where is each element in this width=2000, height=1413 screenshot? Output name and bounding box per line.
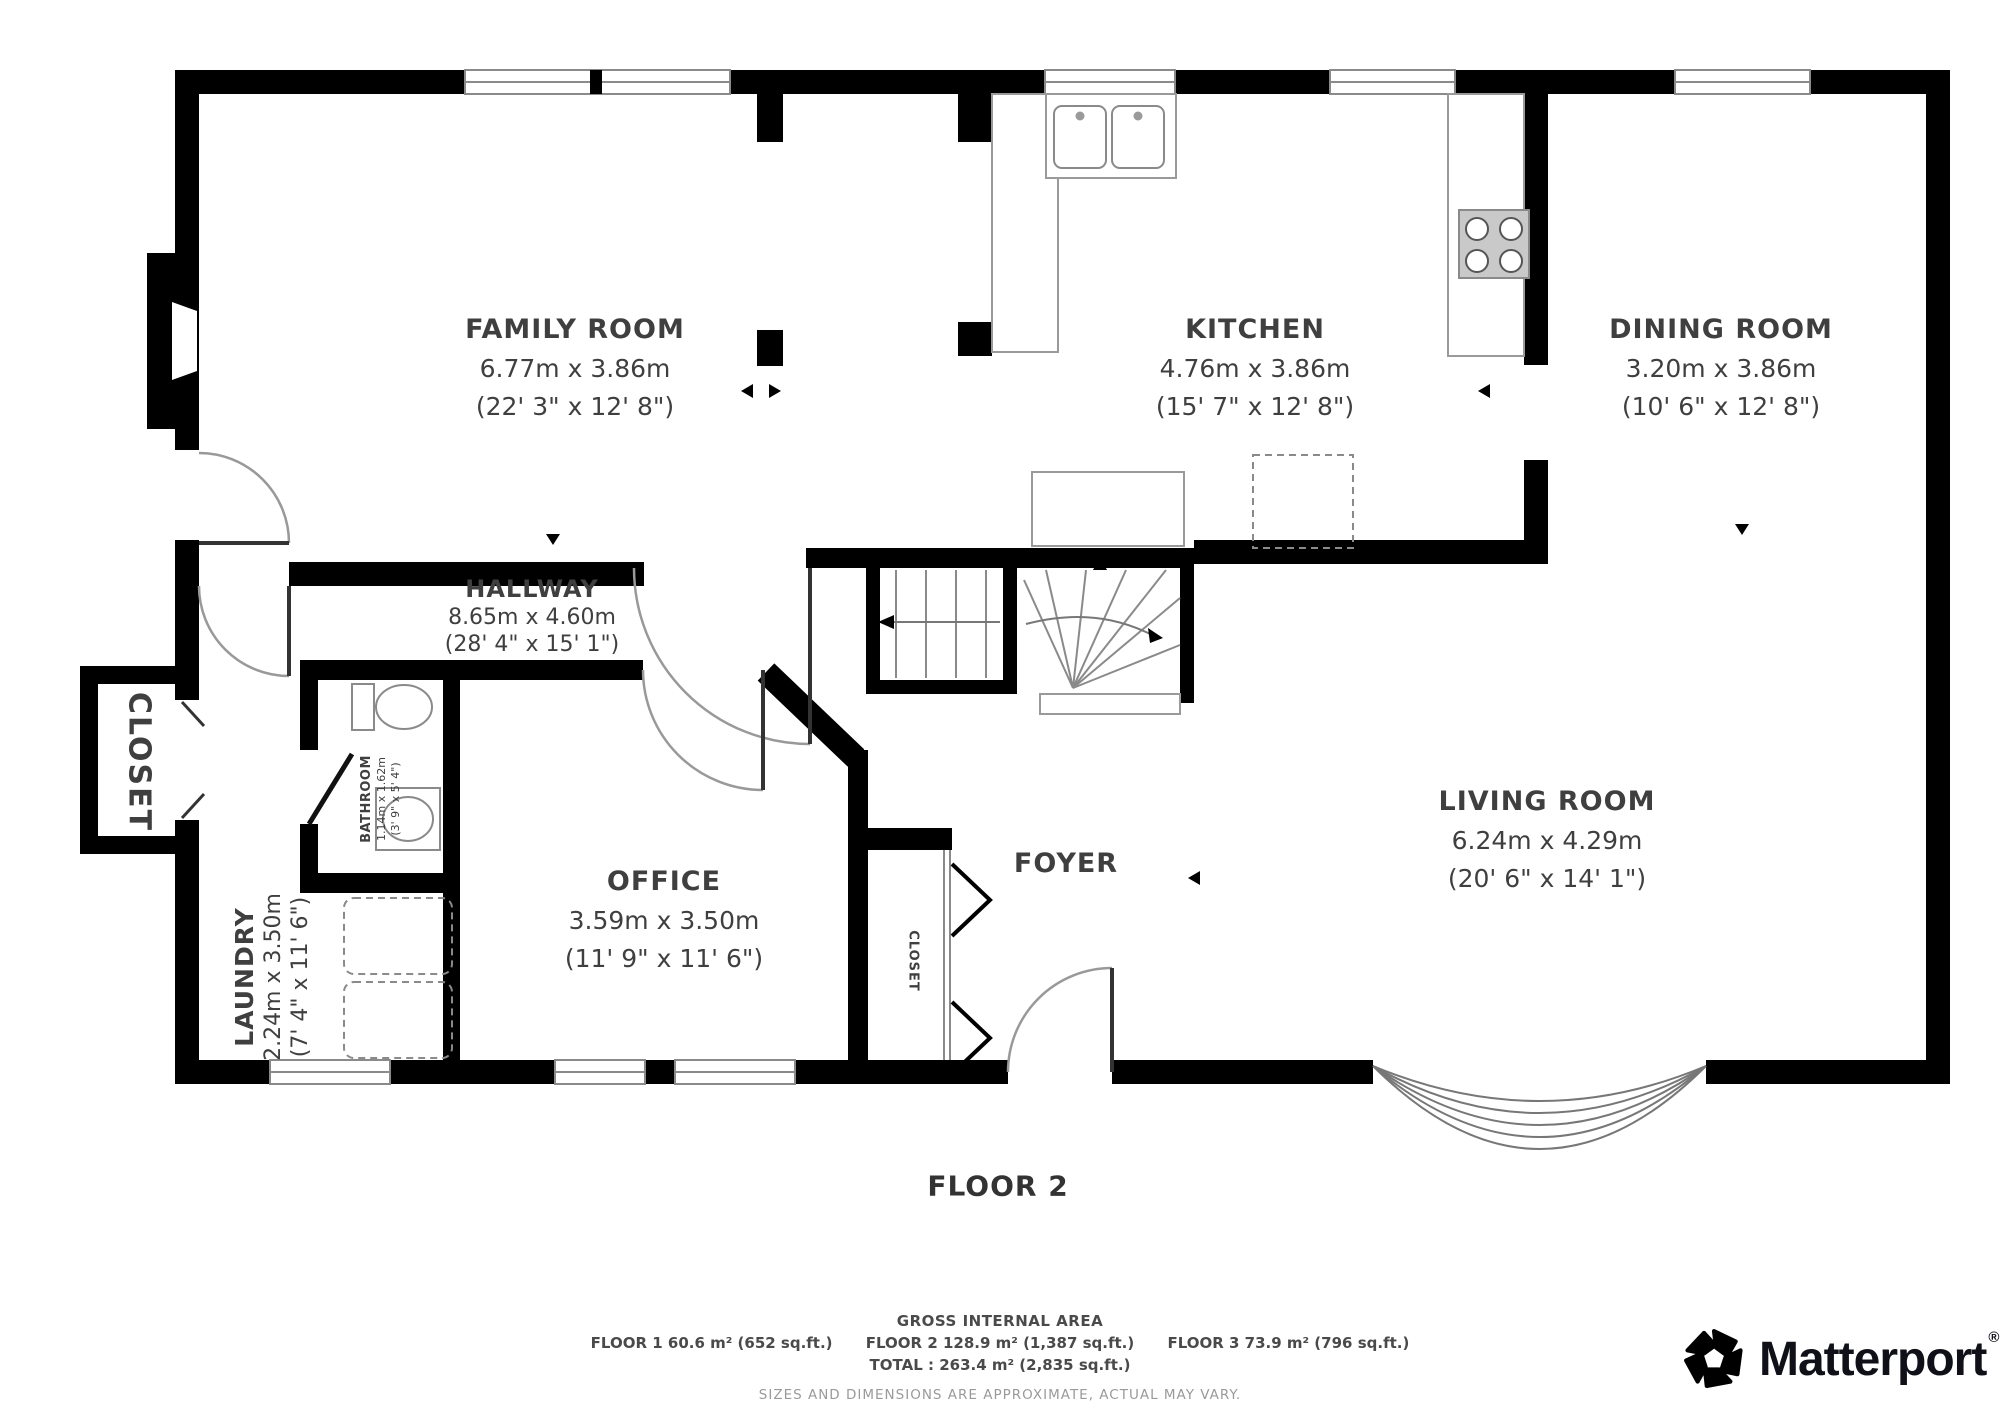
matterport-pinwheel-icon [1683,1326,1745,1392]
room-label-closet-hall: CLOSET [122,692,157,832]
kitchen-island-dashed [1253,455,1353,548]
stove-icon [1459,210,1529,278]
stairs [878,472,1184,714]
laundry-appliances [344,898,452,1058]
registered-mark: ® [1988,1329,1998,1346]
room-label-dining: DINING ROOM 3.20m x 3.86m (10' 6" x 12' … [1609,310,1833,426]
floorplan-page: FAMILY ROOM 6.77m x 3.86m (22' 3" x 12' … [0,0,2000,1413]
doors [199,453,1112,1072]
floor-title: FLOOR 2 [927,1170,1068,1203]
room-label-bathroom: BATHROOM 1.14m x 1.62m (3' 9" x 5' 4") [359,755,403,843]
matterport-wordmark: Matterport® [1759,1332,1996,1387]
room-label-living: LIVING ROOM 6.24m x 4.29m (20' 6" x 14' … [1439,782,1656,898]
toilet-icon [352,684,374,730]
matterport-logo: Matterport® [1683,1326,1996,1392]
floor3-area: FLOOR 3 73.9 m² (796 sq.ft.) [1167,1334,1409,1352]
washer-icon [344,898,452,974]
room-label-hallway: HALLWAY 8.65m x 4.60m (28' 4" x 15' 1") [445,574,619,658]
room-label-laundry: LAUNDRY 2.24m x 3.50m (7' 4" x 11' 6") [230,893,314,1061]
floor1-area: FLOOR 1 60.6 m² (652 sq.ft.) [591,1334,833,1352]
room-label-closet-foyer: CLOSET [906,930,921,992]
bow-window [1373,1066,1706,1149]
room-label-family: FAMILY ROOM 6.77m x 3.86m (22' 3" x 12' … [465,310,685,426]
room-label-office: OFFICE 3.59m x 3.50m (11' 9" x 11' 6") [565,862,763,978]
bifold-door-icon [952,864,990,936]
room-label-foyer: FOYER [1014,844,1118,884]
dryer-icon [344,982,452,1058]
floor2-area: FLOOR 2 128.9 m² (1,387 sq.ft.) [866,1334,1134,1352]
room-label-kitchen: KITCHEN 4.76m x 3.86m (15' 7" x 12' 8") [1156,310,1354,426]
